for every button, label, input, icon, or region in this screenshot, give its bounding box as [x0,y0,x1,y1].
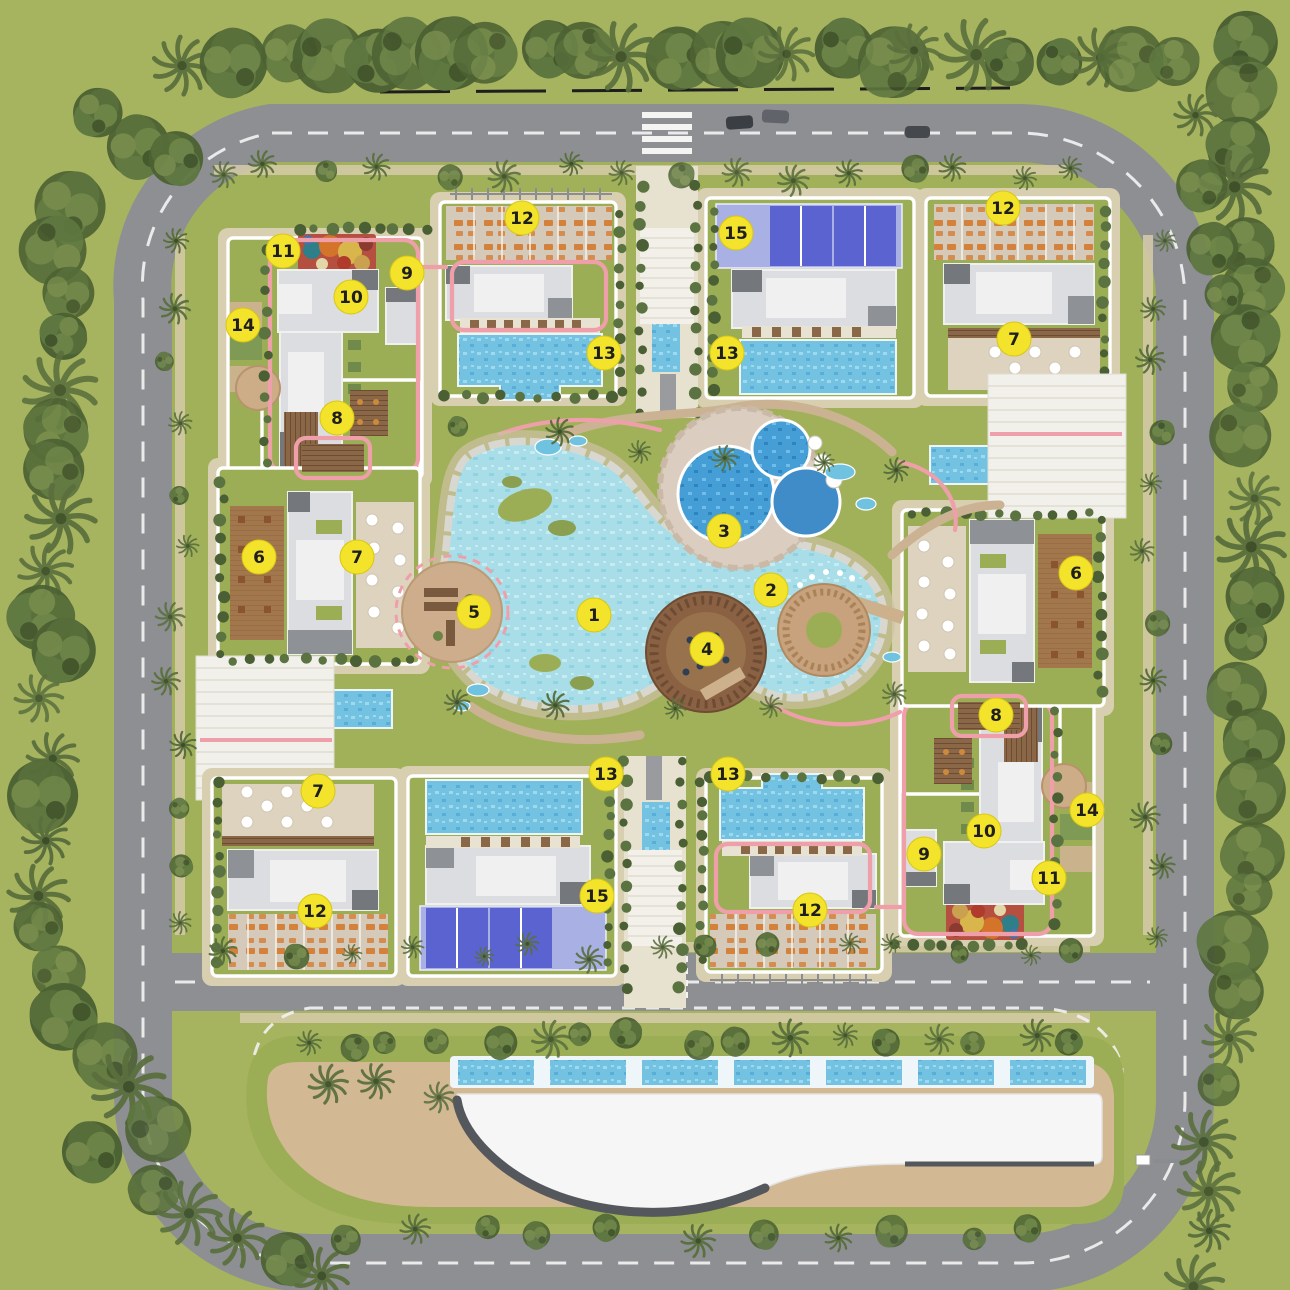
svg-text:10: 10 [339,288,363,308]
plan-marker-8: 8 [320,401,354,435]
plan-marker-9: 9 [907,837,941,871]
svg-text:11: 11 [1037,869,1061,889]
svg-text:13: 13 [594,765,618,785]
plan-marker-12: 12 [505,201,539,235]
hedge-bush-icon [215,554,227,566]
hedge-bush-icon [616,281,625,290]
hedge-bush-icon [1101,221,1111,231]
residential-cluster-northeast [706,198,1110,398]
hedge-bush-icon [260,286,269,295]
plan-marker-15: 15 [580,879,614,913]
svg-text:2: 2 [765,581,777,601]
hedge-bush-icon [1101,335,1109,343]
plan-marker-13: 13 [711,757,745,791]
svg-text:12: 12 [510,209,534,229]
master-plan-image: 1234566777889910101111121212121313131314… [0,0,1290,1290]
plan-marker-9: 9 [390,256,424,290]
hedge-bush-icon [280,654,289,663]
hedge-bush-icon [375,223,385,233]
hedge-bush-icon [229,657,237,665]
hedge-bush-icon [260,392,270,402]
hedge-bush-icon [319,656,327,664]
hedge-bush-icon [635,201,646,212]
hedge-bush-icon [301,653,312,664]
fountain-channel [652,324,680,372]
hedge-bush-icon [218,611,229,622]
svg-text:13: 13 [592,344,616,364]
plan-marker-6: 6 [1059,556,1093,590]
plan-marker-14: 14 [1070,793,1104,827]
svg-text:3: 3 [718,522,730,542]
building-block [732,270,896,328]
hedge-bush-icon [1098,276,1110,288]
svg-text:13: 13 [716,765,740,785]
hedge-bush-icon [216,650,224,658]
hedge-bush-icon [359,222,371,234]
hedge-bush-icon [618,387,628,397]
building-block [288,492,352,654]
svg-text:14: 14 [1075,801,1099,821]
svg-text:7: 7 [1008,330,1020,350]
hedge-bush-icon [690,306,699,315]
plan-marker-11: 11 [266,234,300,268]
hedge-bush-icon [245,654,255,664]
hedge-bush-icon [391,657,401,667]
svg-text:1: 1 [588,606,600,626]
svg-text:12: 12 [991,199,1015,219]
hedge-bush-icon [213,514,226,527]
plan-marker-7: 7 [340,540,374,574]
hedge-bush-icon [258,327,271,340]
plan-marker-15: 15 [719,216,753,250]
master-plan-canvas: 1234566777889910101111121212121313131314… [0,0,1290,1290]
hedge-bush-icon [636,264,645,273]
hedge-bush-icon [369,655,382,668]
hedge-bush-icon [336,653,348,665]
hedge-bush-icon [262,307,272,317]
hedge-bush-icon [438,390,450,402]
plan-marker-1: 1 [577,598,611,632]
hedge-bush-icon [689,387,702,400]
hedge-bush-icon [570,393,581,404]
hedge-bush-icon [691,323,702,334]
hedge-bush-icon [689,363,701,375]
round-plaza [236,366,280,410]
plan-marker-10: 10 [334,280,368,314]
hedge-bush-icon [265,654,275,664]
svg-text:10: 10 [972,822,996,842]
hedge-bush-icon [264,415,272,423]
plan-marker-12: 12 [298,894,332,928]
plan-marker-8: 8 [979,698,1013,732]
hedge-bush-icon [588,389,599,400]
svg-text:7: 7 [312,782,324,802]
hedge-bush-icon [387,223,399,235]
hedge-bush-icon [637,181,649,193]
hedge-bush-icon [694,244,703,253]
hedge-bush-icon [635,365,645,375]
plan-marker-13: 13 [589,757,623,791]
building-block [944,264,1094,324]
hedge-bush-icon [613,226,625,238]
hedge-bush-icon [710,260,719,269]
hedge-bush-icon [708,311,720,323]
plan-marker-7: 7 [997,322,1031,356]
hedge-bush-icon [1098,314,1107,323]
svg-text:7: 7 [351,548,363,568]
svg-text:8: 8 [331,409,343,429]
hedge-bush-icon [403,223,415,235]
hedge-bush-icon [633,218,646,231]
hedge-bush-icon [617,244,626,253]
hedge-bush-icon [606,391,618,403]
svg-text:9: 9 [918,845,930,865]
pedestrian-spine-north [636,166,698,418]
hedge-bush-icon [533,394,541,402]
clubhouse-island [246,1036,1182,1224]
hedge-bush-icon [259,370,270,381]
beach-pool-strip [450,1056,1094,1088]
hedge-bush-icon [708,275,719,286]
plan-marker-14: 14 [226,308,260,342]
hedge-bush-icon [551,392,561,402]
svg-text:12: 12 [798,901,822,921]
hedge-bush-icon [1099,258,1110,269]
plan-marker-7: 7 [301,774,335,808]
hedge-bush-icon [350,655,362,667]
hedge-bush-icon [515,392,525,402]
hedge-bush-icon [1100,349,1108,357]
hedge-bush-icon [495,390,505,400]
hedge-bush-icon [707,295,718,306]
hedge-bush-icon [422,225,432,235]
plan-marker-10: 10 [967,814,1001,848]
hedge-bush-icon [638,345,647,354]
hedge-bush-icon [218,591,230,603]
hedge-bush-icon [638,387,647,396]
hedge-bush-icon [636,239,649,252]
plan-marker-5: 5 [457,595,491,629]
svg-text:11: 11 [271,242,295,262]
hedge-bush-icon [1096,296,1109,309]
hedge-bush-icon [294,224,306,236]
plan-marker-13: 13 [587,336,621,370]
hedge-bush-icon [214,476,226,488]
plan-marker-2: 2 [754,573,788,607]
hedge-bush-icon [690,222,701,233]
hedge-bush-icon [264,351,273,360]
hedge-bush-icon [220,494,229,503]
hedge-bush-icon [259,437,268,446]
plan-marker-6: 6 [242,540,276,574]
svg-text:8: 8 [990,706,1002,726]
svg-text:14: 14 [231,316,255,336]
hedge-bush-icon [215,573,224,582]
hedge-bush-icon [709,243,717,251]
hedge-bush-icon [343,222,355,234]
svg-text:6: 6 [253,548,265,568]
hedge-bush-icon [263,459,272,468]
hedge-bush-icon [635,282,643,290]
hedge-bush-icon [693,201,702,210]
hedge-bush-icon [613,318,623,328]
hedge-bush-icon [634,326,643,335]
hedge-bush-icon [216,632,226,642]
hedge-bush-icon [327,223,340,236]
hedge-bush-icon [691,261,701,271]
hedge-bush-icon [462,390,471,399]
svg-text:12: 12 [303,902,327,922]
hedge-bush-icon [260,265,270,275]
hedge-bush-icon [614,264,624,274]
garden-pool [332,690,392,728]
hedge-bush-icon [477,392,489,404]
hedge-bush-icon [309,224,317,232]
pergola-deck [350,390,388,436]
svg-text:15: 15 [724,224,748,244]
plan-marker-13: 13 [710,336,744,370]
plan-marker-12: 12 [986,191,1020,225]
hedge-bush-icon [707,367,718,378]
hedge-bush-icon [1100,240,1110,250]
svg-text:13: 13 [715,344,739,364]
plan-marker-12: 12 [793,893,827,927]
hedge-bush-icon [406,655,414,663]
svg-text:6: 6 [1070,564,1082,584]
hedge-bush-icon [615,210,623,218]
plan-marker-11: 11 [1032,861,1066,895]
plan-marker-4: 4 [690,632,724,666]
hedge-bush-icon [710,207,718,215]
svg-text:4: 4 [701,640,713,660]
hedge-bush-icon [615,367,625,377]
hedge-bush-icon [1100,206,1111,217]
svg-text:15: 15 [585,887,609,907]
pergola-plot [296,438,370,478]
plan-marker-3: 3 [707,514,741,548]
hedge-bush-icon [215,533,226,544]
hedge-bush-icon [711,225,719,233]
svg-text:5: 5 [468,603,480,623]
hedge-bush-icon [708,384,720,396]
hedge-bush-icon [616,301,625,310]
hedge-bush-icon [694,347,702,355]
hedge-bush-icon [636,302,647,313]
hedge-bush-icon [690,282,701,293]
building-pool [740,326,896,394]
svg-text:9: 9 [401,264,413,284]
